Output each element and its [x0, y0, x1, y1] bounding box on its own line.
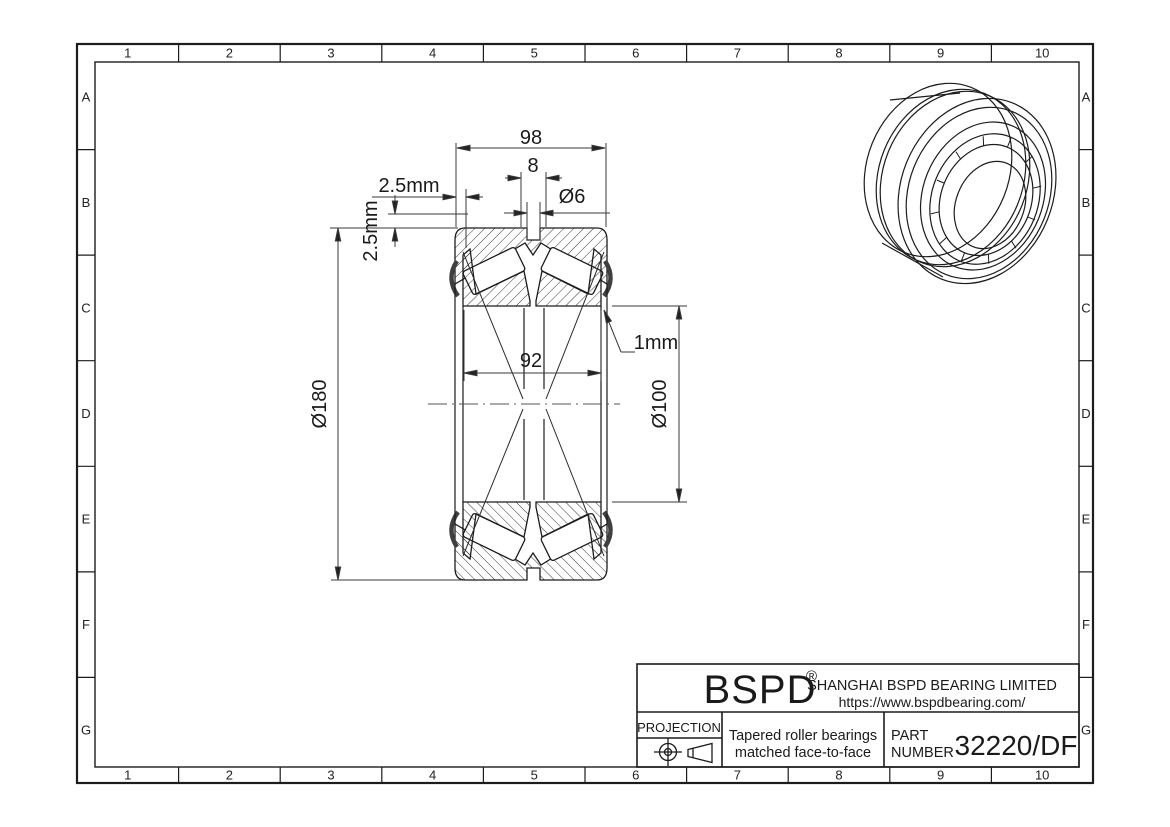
col-label: 3 — [327, 46, 334, 61]
col-label: 7 — [734, 768, 741, 783]
col-label: 4 — [429, 46, 436, 61]
part-number: 32220/DF — [955, 730, 1078, 761]
col-label: 1 — [124, 768, 131, 783]
row-label: D — [81, 406, 90, 421]
dim-offset-v: 2.5mm — [360, 200, 382, 261]
col-label: 5 — [531, 768, 538, 783]
col-label: 2 — [226, 768, 233, 783]
col-label: 10 — [1035, 46, 1049, 61]
row-label: C — [81, 300, 90, 315]
engineering-drawing: 1 2 3 4 5 6 7 8 9 10 1 2 3 4 5 6 7 8 9 1… — [0, 0, 1170, 827]
row-label: A — [82, 89, 91, 104]
dim-8: 8 — [527, 155, 538, 177]
sheet-frame — [77, 44, 1093, 783]
dim-offset-h: 2.5mm — [378, 175, 439, 197]
col-label: 4 — [429, 768, 436, 783]
row-label: G — [1081, 723, 1091, 738]
row-label: E — [82, 512, 91, 527]
col-label: 6 — [632, 46, 639, 61]
col-label: 2 — [226, 46, 233, 61]
row-label: C — [1081, 300, 1090, 315]
part-label-line1: PART — [891, 728, 928, 744]
row-label: G — [81, 723, 91, 738]
row-label: F — [1082, 617, 1090, 632]
grid-ticks — [77, 44, 1093, 783]
description-line2: matched face-to-face — [735, 745, 871, 761]
col-label: 10 — [1035, 768, 1049, 783]
row-label: B — [1082, 195, 1091, 210]
row-label: E — [1082, 512, 1091, 527]
dim-recess: 1mm — [634, 332, 678, 354]
projection-symbol-icon — [654, 738, 712, 766]
part-label-line2: NUMBER — [891, 745, 954, 761]
dim-bore-dia: Ø100 — [649, 380, 671, 429]
row-label: F — [82, 617, 90, 632]
col-label: 8 — [835, 46, 842, 61]
row-label: B — [82, 195, 91, 210]
col-label: 1 — [124, 46, 131, 61]
company-website: https://www.bspdbearing.com/ — [839, 694, 1026, 710]
cage-ticks — [931, 136, 1041, 263]
bearing-section-view — [428, 228, 620, 580]
dimension-offset-horizontal — [372, 189, 483, 248]
dim-92: 92 — [520, 350, 542, 372]
company-name: SHANGHAI BSPD BEARING LIMITED — [807, 678, 1057, 694]
col-label: 6 — [632, 768, 639, 783]
grid-labels: 1 2 3 4 5 6 7 8 9 10 1 2 3 4 5 6 7 8 9 1… — [81, 46, 1091, 783]
col-label: 7 — [734, 46, 741, 61]
title-block: BSPD ® SHANGHAI BSPD BEARING LIMITED htt… — [637, 664, 1079, 767]
drawing-sheet: 1 2 3 4 5 6 7 8 9 10 1 2 3 4 5 6 7 8 9 1… — [0, 0, 1170, 827]
dim-oil-hole: Ø6 — [559, 186, 586, 208]
col-label: 8 — [835, 768, 842, 783]
col-label: 9 — [937, 46, 944, 61]
row-label: D — [1081, 406, 1090, 421]
row-label: A — [1082, 89, 1091, 104]
dimension-groove-width — [505, 172, 562, 227]
dim-98: 98 — [520, 127, 542, 149]
projection-label: PROJECTION — [637, 720, 721, 735]
col-label: 3 — [327, 768, 334, 783]
col-label: 9 — [937, 768, 944, 783]
brand-logo: BSPD — [704, 668, 817, 712]
description-line1: Tapered roller bearings — [729, 728, 877, 744]
bearing-isometric-view — [839, 61, 1083, 308]
col-label: 5 — [531, 46, 538, 61]
dim-outer-dia: Ø180 — [309, 380, 331, 429]
